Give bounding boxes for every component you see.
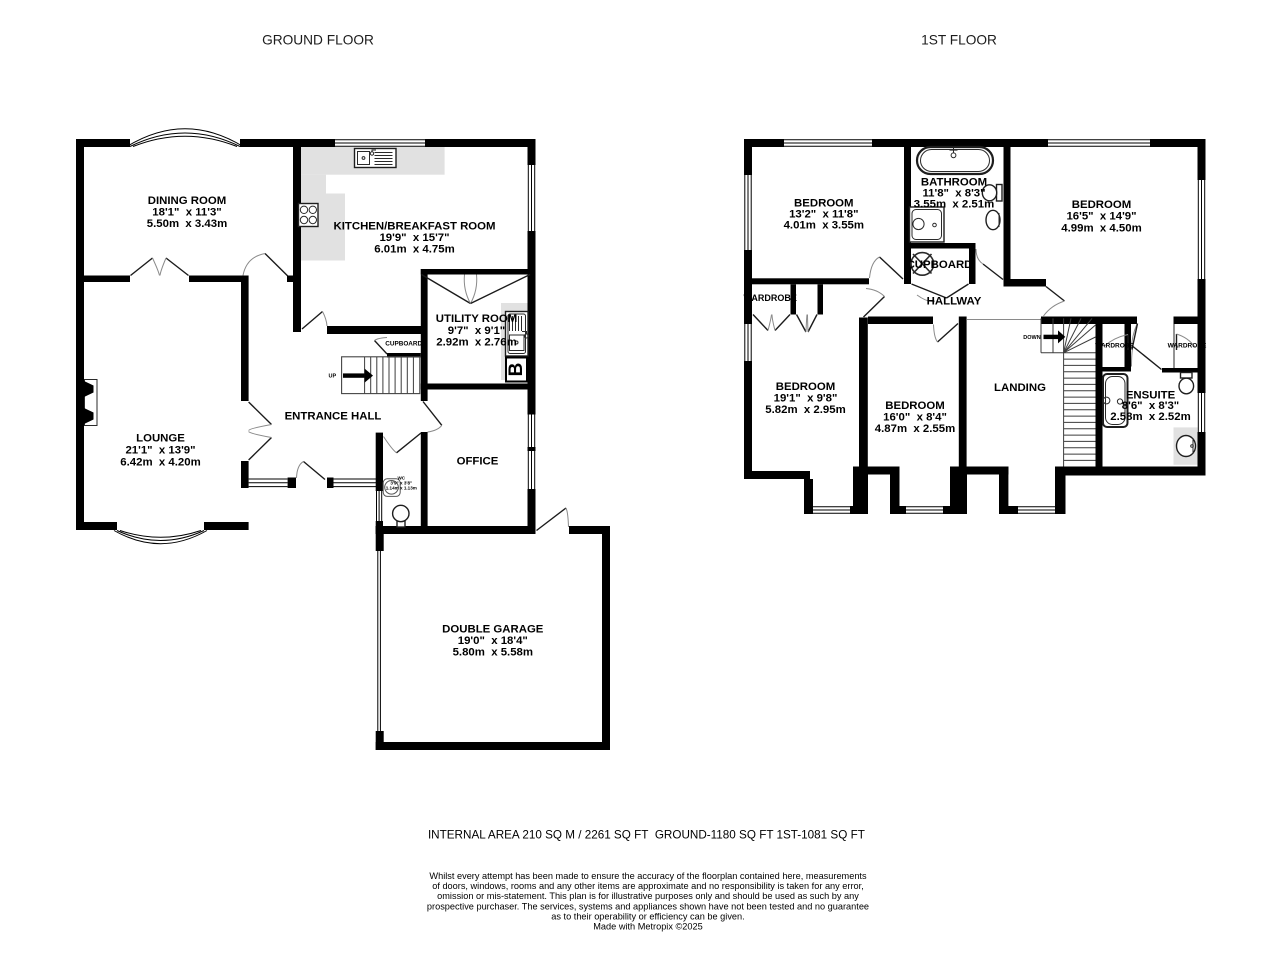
svg-text:18'1" x 11'3": 18'1" x 11'3" — [152, 207, 221, 219]
svg-text:WARDROBE: WARDROBE — [1168, 343, 1207, 350]
svg-text:prospective purchaser. The ser: prospective purchaser. The services, sys… — [427, 901, 869, 911]
svg-text:9'7" x 9'1": 9'7" x 9'1" — [448, 325, 505, 337]
svg-text:BEDROOM: BEDROOM — [1072, 199, 1131, 211]
svg-text:4.01m x 3.55m: 4.01m x 3.55m — [784, 220, 864, 232]
svg-text:21'1" x 13'9": 21'1" x 13'9" — [125, 445, 195, 457]
svg-text:WARDROBE: WARDROBE — [1095, 343, 1134, 350]
svg-text:8'6" x 8'3": 8'6" x 8'3" — [1122, 400, 1179, 412]
svg-text:6.01m x 4.75m: 6.01m x 4.75m — [374, 244, 454, 256]
svg-text:CUPBOARD: CUPBOARD — [907, 259, 973, 271]
svg-text:16'0" x 8'4": 16'0" x 8'4" — [883, 412, 947, 424]
svg-text:5.80m x 5.58m: 5.80m x 5.58m — [453, 647, 533, 659]
svg-text:5.50m x 3.43m: 5.50m x 3.43m — [147, 218, 227, 230]
svg-text:HALLWAY: HALLWAY — [927, 296, 982, 308]
svg-text:GROUND FLOOR: GROUND FLOOR — [262, 33, 374, 48]
svg-text:1.14m x 1.13m: 1.14m x 1.13m — [386, 485, 417, 490]
svg-text:4.87m x 2.55m: 4.87m x 2.55m — [875, 423, 955, 435]
svg-text:LANDING: LANDING — [994, 382, 1046, 394]
svg-text:Made with Metropix ©2025: Made with Metropix ©2025 — [593, 922, 702, 932]
svg-text:19'0" x 18'4": 19'0" x 18'4" — [458, 635, 528, 647]
svg-text:5.82m x 2.95m: 5.82m x 2.95m — [765, 404, 845, 416]
svg-text:WC: WC — [397, 476, 405, 481]
svg-text:DINING ROOM: DINING ROOM — [148, 195, 226, 207]
svg-text:DOWN: DOWN — [1023, 335, 1040, 341]
svg-text:as to their operability or eff: as to their operability or efficiency ca… — [551, 912, 744, 922]
svg-text:19'9" x 15'7": 19'9" x 15'7" — [379, 232, 449, 244]
svg-text:WARDROBE: WARDROBE — [743, 293, 797, 303]
svg-text:Whilst every attempt has been: Whilst every attempt has been made to en… — [429, 871, 867, 881]
svg-text:4.99m x 4.50m: 4.99m x 4.50m — [1061, 223, 1141, 235]
svg-text:2.58m x 2.52m: 2.58m x 2.52m — [1110, 411, 1190, 423]
svg-text:CUPBOARD: CUPBOARD — [385, 340, 422, 347]
svg-text:DOUBLE GARAGE: DOUBLE GARAGE — [442, 624, 544, 636]
svg-text:B: B — [506, 363, 527, 377]
svg-text:19'1" x 9'8": 19'1" x 9'8" — [774, 393, 838, 405]
svg-text:6.42m x 4.20m: 6.42m x 4.20m — [120, 457, 200, 469]
svg-text:of doors, windows, rooms and a: of doors, windows, rooms and any other i… — [432, 881, 864, 891]
svg-text:OFFICE: OFFICE — [457, 455, 499, 467]
svg-text:3'9" x 3'8": 3'9" x 3'8" — [390, 481, 412, 486]
svg-text:UTILITY ROOM: UTILITY ROOM — [436, 313, 517, 325]
svg-text:ENTRANCE HALL: ENTRANCE HALL — [285, 411, 382, 423]
svg-text:BEDROOM: BEDROOM — [776, 381, 835, 393]
svg-text:LOUNGE: LOUNGE — [136, 433, 185, 445]
svg-text:KITCHEN/BREAKFAST ROOM: KITCHEN/BREAKFAST ROOM — [334, 221, 496, 233]
svg-text:BEDROOM: BEDROOM — [885, 400, 944, 412]
svg-text:INTERNAL AREA 210 SQ M / 2261: INTERNAL AREA 210 SQ M / 2261 SQ FT GROU… — [428, 829, 865, 842]
svg-text:1ST FLOOR: 1ST FLOOR — [921, 33, 997, 48]
svg-text:3.55m x 2.51m: 3.55m x 2.51m — [914, 198, 994, 210]
svg-text:2.92m x 2.76m: 2.92m x 2.76m — [436, 337, 516, 349]
svg-text:omission or mis-statement. Thi: omission or mis-statement. This plan is … — [437, 891, 859, 901]
svg-text:UP: UP — [328, 374, 336, 380]
svg-text:16'5" x 14'9": 16'5" x 14'9" — [1066, 211, 1136, 223]
